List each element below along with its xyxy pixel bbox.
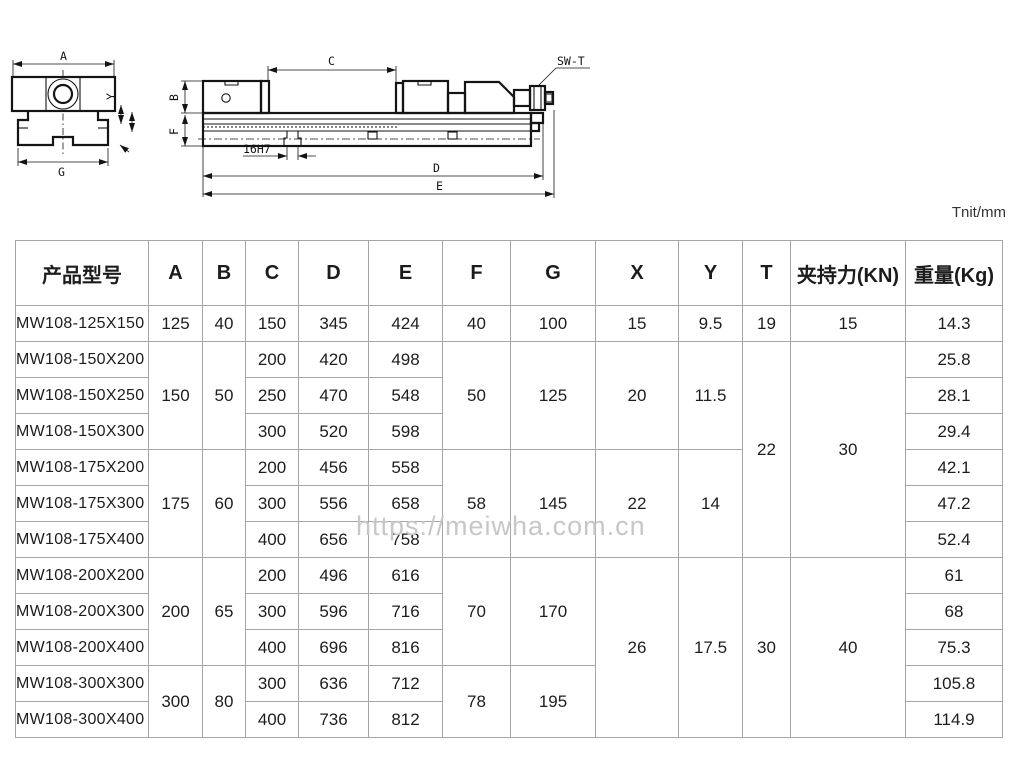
- value-cell: 65: [203, 558, 246, 666]
- value-cell: 50: [203, 342, 246, 450]
- value-cell: 250: [246, 378, 299, 414]
- value-cell: 150: [149, 342, 203, 450]
- side-view-drawing: C B F SW-T 16H7 D E: [168, 53, 613, 205]
- value-cell: 548: [369, 378, 443, 414]
- value-cell: 736: [299, 702, 369, 738]
- value-cell: 596: [299, 594, 369, 630]
- column-header: 重量(Kg): [906, 241, 1003, 306]
- column-header: T: [743, 241, 791, 306]
- value-cell: 400: [246, 522, 299, 558]
- value-cell: 47.2: [906, 486, 1003, 522]
- model-cell: MW108-175X200: [16, 450, 149, 486]
- spec-table: 产品型号ABCDEFGXYT夹持力(KN)重量(Kg) MW108-125X15…: [15, 240, 1003, 738]
- value-cell: 300: [246, 594, 299, 630]
- column-header: B: [203, 241, 246, 306]
- value-cell: 114.9: [906, 702, 1003, 738]
- value-cell: 558: [369, 450, 443, 486]
- side-view-outline: [203, 81, 553, 146]
- value-cell: 42.1: [906, 450, 1003, 486]
- value-cell: 14.3: [906, 306, 1003, 342]
- value-cell: 195: [511, 666, 596, 738]
- value-cell: 17.5: [679, 558, 743, 738]
- column-header: 夹持力(KN): [791, 241, 906, 306]
- value-cell: 616: [369, 558, 443, 594]
- value-cell: 636: [299, 666, 369, 702]
- dim-label-e: E: [436, 179, 443, 193]
- value-cell: 758: [369, 522, 443, 558]
- value-cell: 716: [369, 594, 443, 630]
- value-cell: 812: [369, 702, 443, 738]
- value-cell: 200: [246, 558, 299, 594]
- value-cell: 696: [299, 630, 369, 666]
- wrench-size-label: SW-T: [557, 54, 585, 68]
- value-cell: 22: [743, 342, 791, 558]
- column-header: D: [299, 241, 369, 306]
- value-cell: 68: [906, 594, 1003, 630]
- dim-label-c: C: [328, 54, 335, 68]
- value-cell: 78: [443, 666, 511, 738]
- value-cell: 200: [149, 558, 203, 666]
- model-cell: MW108-200X400: [16, 630, 149, 666]
- value-cell: 400: [246, 702, 299, 738]
- value-cell: 300: [246, 414, 299, 450]
- value-cell: 26: [596, 558, 679, 738]
- model-cell: MW108-150X200: [16, 342, 149, 378]
- value-cell: 420: [299, 342, 369, 378]
- value-cell: 300: [246, 486, 299, 522]
- model-cell: MW108-200X200: [16, 558, 149, 594]
- value-cell: 712: [369, 666, 443, 702]
- value-cell: 40: [203, 306, 246, 342]
- front-view-drawing: A G Y: [8, 50, 153, 195]
- value-cell: 14: [679, 450, 743, 558]
- model-cell: MW108-300X300: [16, 666, 149, 702]
- dim-label-f: F: [168, 128, 181, 135]
- dim-label-d: D: [433, 161, 440, 175]
- model-cell: MW108-175X400: [16, 522, 149, 558]
- column-header: 产品型号: [16, 241, 149, 306]
- value-cell: 125: [511, 342, 596, 450]
- value-cell: 145: [511, 450, 596, 558]
- value-cell: 598: [369, 414, 443, 450]
- value-cell: 40: [791, 558, 906, 738]
- value-cell: 75.3: [906, 630, 1003, 666]
- value-cell: 70: [443, 558, 511, 666]
- column-header: F: [443, 241, 511, 306]
- value-cell: 200: [246, 450, 299, 486]
- model-cell: MW108-125X150: [16, 306, 149, 342]
- keyway-label: 16H7: [243, 142, 271, 156]
- table-row: MW108-125X1501254015034542440100159.5191…: [16, 306, 1003, 342]
- value-cell: 11.5: [679, 342, 743, 450]
- column-header: Y: [679, 241, 743, 306]
- value-cell: 60: [203, 450, 246, 558]
- column-header: X: [596, 241, 679, 306]
- dim-label-g: G: [58, 165, 65, 179]
- side-view-dimensions: [181, 66, 590, 198]
- value-cell: 125: [149, 306, 203, 342]
- value-cell: 28.1: [906, 378, 1003, 414]
- column-header: E: [369, 241, 443, 306]
- value-cell: 200: [246, 342, 299, 378]
- value-cell: 58: [443, 450, 511, 558]
- table-row: MW108-200X20020065200496616701702617.530…: [16, 558, 1003, 594]
- model-cell: MW108-300X400: [16, 702, 149, 738]
- dim-label-a: A: [60, 50, 67, 63]
- value-cell: 20: [596, 342, 679, 450]
- value-cell: 424: [369, 306, 443, 342]
- value-cell: 15: [791, 306, 906, 342]
- value-cell: 22: [596, 450, 679, 558]
- value-cell: 105.8: [906, 666, 1003, 702]
- value-cell: 50: [443, 342, 511, 450]
- value-cell: 498: [369, 342, 443, 378]
- column-header: C: [246, 241, 299, 306]
- column-header: G: [511, 241, 596, 306]
- model-cell: MW108-150X300: [16, 414, 149, 450]
- value-cell: 816: [369, 630, 443, 666]
- value-cell: 30: [743, 558, 791, 738]
- value-cell: 19: [743, 306, 791, 342]
- value-cell: 40: [443, 306, 511, 342]
- value-cell: 456: [299, 450, 369, 486]
- value-cell: 100: [511, 306, 596, 342]
- table-row: MW108-150X20015050200420498501252011.522…: [16, 342, 1003, 378]
- value-cell: 496: [299, 558, 369, 594]
- value-cell: 658: [369, 486, 443, 522]
- value-cell: 556: [299, 486, 369, 522]
- value-cell: 175: [149, 450, 203, 558]
- value-cell: 9.5: [679, 306, 743, 342]
- value-cell: 470: [299, 378, 369, 414]
- value-cell: 170: [511, 558, 596, 666]
- spec-table-container: 产品型号ABCDEFGXYT夹持力(KN)重量(Kg) MW108-125X15…: [15, 240, 1003, 738]
- value-cell: 400: [246, 630, 299, 666]
- dim-label-y: Y: [104, 93, 118, 100]
- value-cell: 300: [149, 666, 203, 738]
- dim-label-b: B: [168, 94, 181, 101]
- front-view-outline: [12, 77, 115, 145]
- column-header: A: [149, 241, 203, 306]
- value-cell: 520: [299, 414, 369, 450]
- value-cell: 61: [906, 558, 1003, 594]
- model-cell: MW108-150X250: [16, 378, 149, 414]
- value-cell: 29.4: [906, 414, 1003, 450]
- value-cell: 300: [246, 666, 299, 702]
- model-cell: MW108-175X300: [16, 486, 149, 522]
- unit-note: Tnit/mm: [952, 204, 1006, 221]
- value-cell: 25.8: [906, 342, 1003, 378]
- value-cell: 15: [596, 306, 679, 342]
- value-cell: 52.4: [906, 522, 1003, 558]
- table-header-row: 产品型号ABCDEFGXYT夹持力(KN)重量(Kg): [16, 241, 1003, 306]
- model-cell: MW108-200X300: [16, 594, 149, 630]
- value-cell: 80: [203, 666, 246, 738]
- value-cell: 345: [299, 306, 369, 342]
- value-cell: 30: [791, 342, 906, 558]
- value-cell: 656: [299, 522, 369, 558]
- value-cell: 150: [246, 306, 299, 342]
